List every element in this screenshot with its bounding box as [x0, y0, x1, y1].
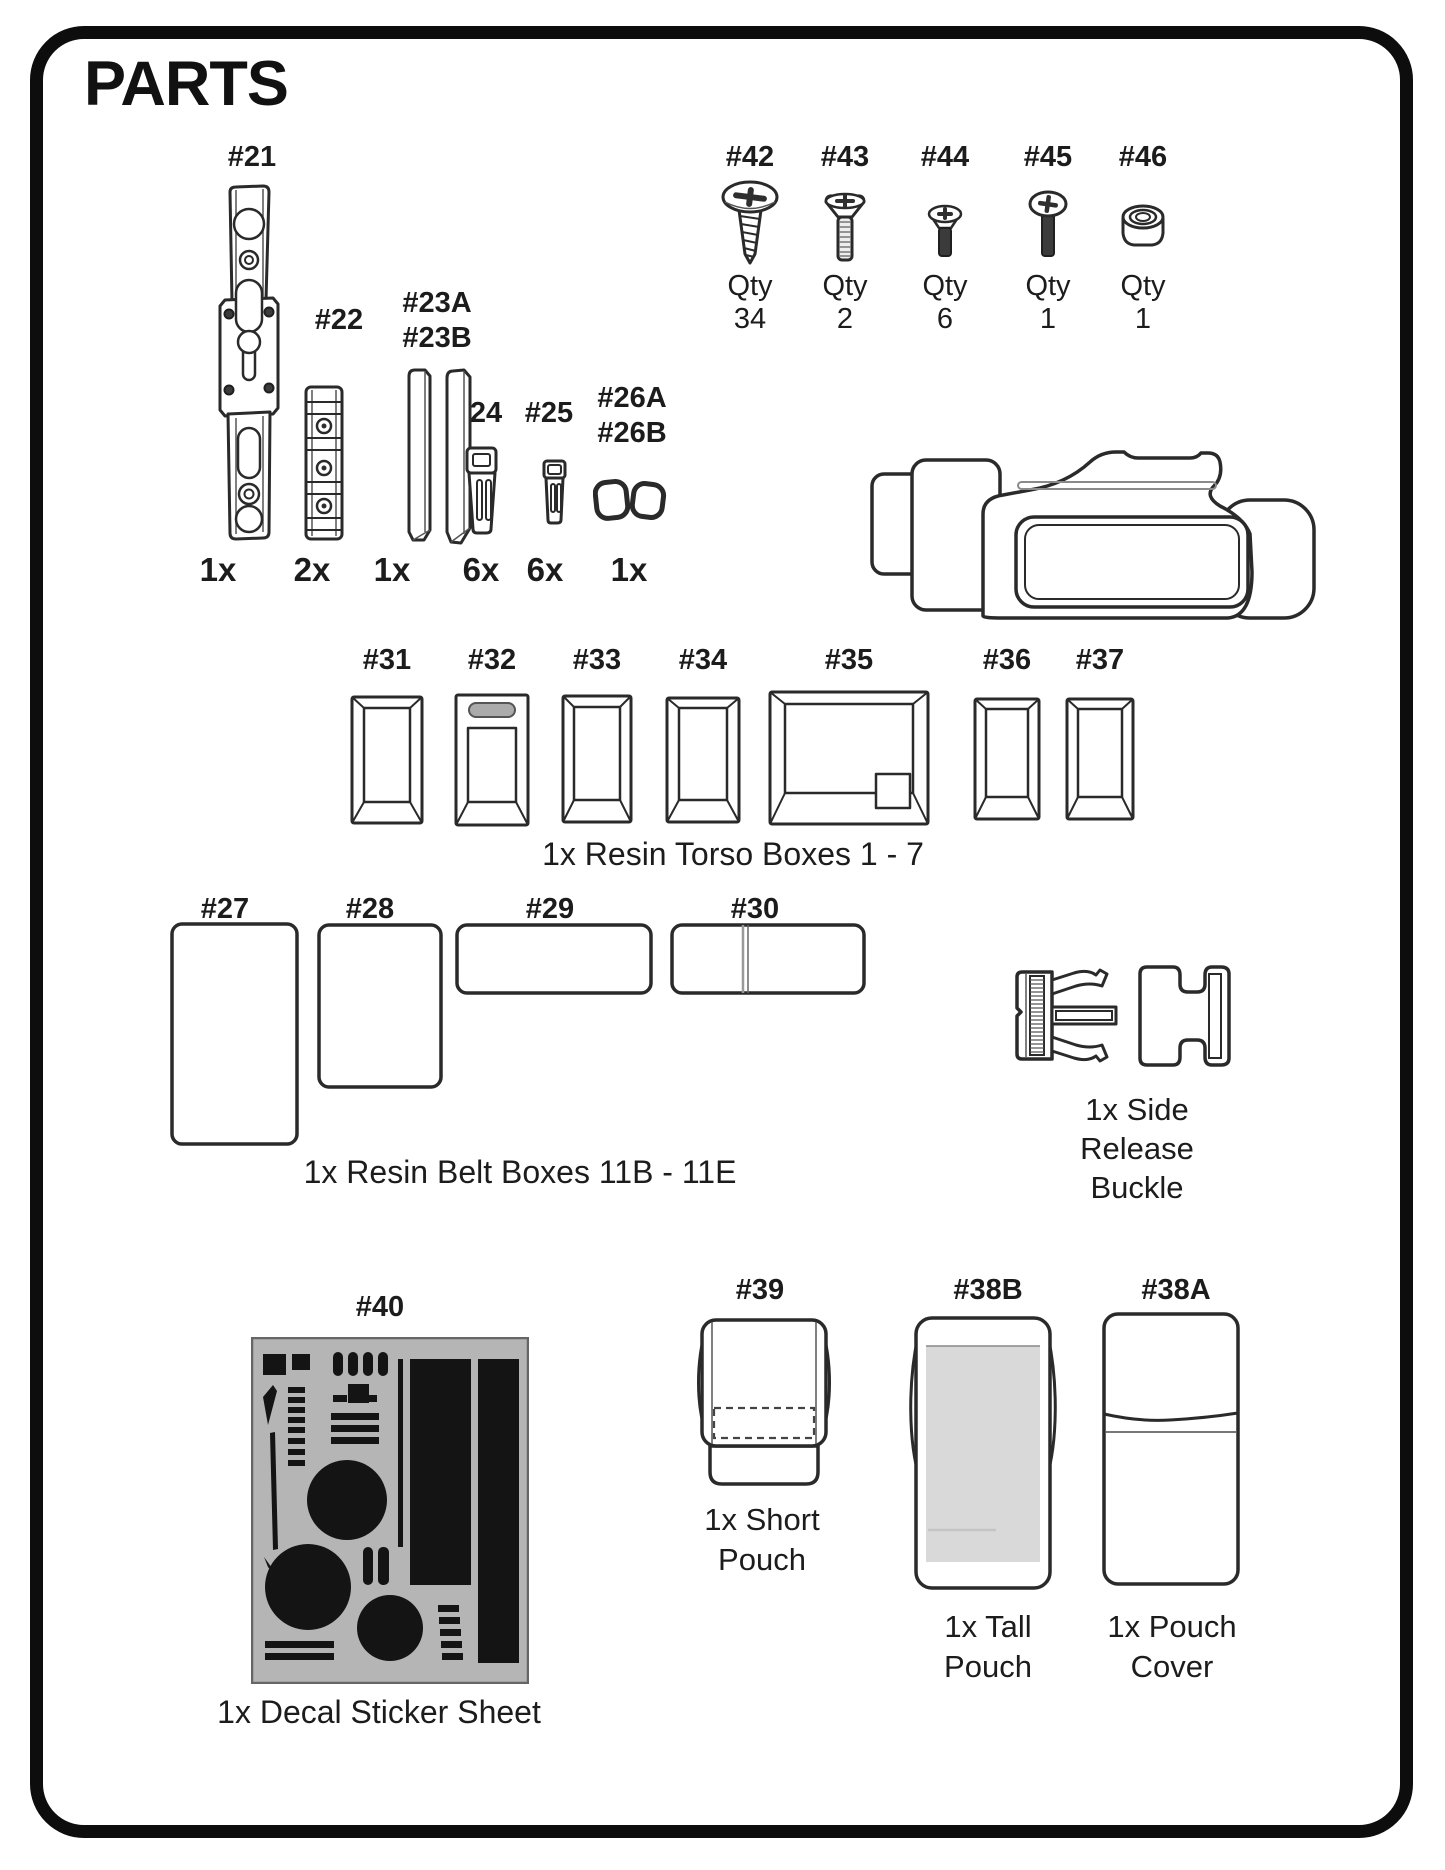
part-24-qty: 6x	[463, 551, 500, 589]
parts-page: PARTS #21 #22 #23A #23B #24 #25 #26A #26…	[0, 0, 1445, 1870]
part-25-illustration	[538, 458, 570, 526]
box-32-illustration	[452, 686, 532, 834]
box-32-label: #32	[468, 643, 516, 678]
box-36-illustration	[972, 692, 1042, 826]
part-26-label: #26A #26B	[597, 381, 666, 451]
tall-pouch-caption: 1x Tall Pouch	[944, 1607, 1032, 1687]
screw-42-icon	[719, 180, 781, 268]
box-31-illustration	[348, 688, 426, 832]
decal-sheet-illustration	[251, 1337, 529, 1684]
chest-box-illustration	[868, 422, 1318, 627]
part-21-label: #21	[228, 140, 276, 175]
box-34-illustration	[663, 690, 743, 830]
screw-43-qty: Qty2	[822, 270, 867, 336]
short-pouch-illustration	[688, 1312, 840, 1494]
part-21-qty: 1x	[200, 551, 237, 589]
nut-46-qty: Qty1	[1120, 270, 1165, 336]
box-36-label: #36	[983, 643, 1031, 678]
part-25-qty: 6x	[527, 551, 564, 589]
decal-sheet-label: #40	[356, 1290, 404, 1325]
nut-46-label: #46	[1119, 140, 1167, 175]
box-30-illustration	[668, 921, 868, 997]
pouch-cover-label: #38A	[1141, 1273, 1210, 1308]
buckle-male-illustration	[1010, 958, 1122, 1073]
screw-42-qty: Qty34	[727, 270, 772, 336]
screw-45-label: #45	[1024, 140, 1072, 175]
tall-pouch-label: #38B	[953, 1273, 1022, 1308]
screw-43-label: #43	[821, 140, 869, 175]
box-33-illustration	[559, 688, 635, 830]
box-27-illustration	[168, 920, 301, 1148]
pouch-cover-illustration	[1100, 1310, 1242, 1590]
part-25-label: #25	[525, 396, 573, 431]
part-22-label: #22	[315, 303, 363, 338]
torso-boxes-caption: 1x Resin Torso Boxes 1 - 7	[542, 836, 924, 873]
tall-pouch-illustration	[906, 1312, 1060, 1596]
part-26-qty: 1x	[611, 551, 648, 589]
part-24-illustration	[460, 444, 502, 536]
box-33-label: #33	[573, 643, 621, 678]
screw-45-icon	[1027, 190, 1069, 260]
short-pouch-caption: 1x Short Pouch	[704, 1500, 819, 1580]
pouch-cover-caption: 1x Pouch Cover	[1107, 1607, 1236, 1687]
screw-45-qty: Qty1	[1025, 270, 1070, 336]
belt-boxes-caption: 1x Resin Belt Boxes 11B - 11E	[304, 1154, 737, 1191]
part-26-illustration	[593, 477, 667, 523]
buckle-female-illustration	[1133, 960, 1235, 1072]
part-21-illustration	[203, 182, 295, 544]
box-35-illustration	[766, 684, 932, 832]
short-pouch-label: #39	[736, 1273, 784, 1308]
box-31-label: #31	[363, 643, 411, 678]
part-23-qty: 1x	[374, 551, 411, 589]
part-22-illustration	[299, 382, 349, 544]
part-23-label: #23A #23B	[402, 286, 471, 356]
box-37-label: #37	[1076, 643, 1124, 678]
screw-44-label: #44	[921, 140, 969, 175]
nut-46-icon	[1120, 203, 1166, 248]
box-35-label: #35	[825, 643, 873, 678]
screw-43-icon	[821, 190, 869, 266]
box-34-label: #34	[679, 643, 727, 678]
box-37-illustration	[1063, 692, 1137, 826]
screw-42-label: #42	[726, 140, 774, 175]
part-22-qty: 2x	[294, 551, 331, 589]
screw-44-icon	[925, 202, 965, 260]
buckle-caption: 1x Side Release Buckle	[1080, 1090, 1194, 1207]
decal-sheet-caption: 1x Decal Sticker Sheet	[217, 1694, 541, 1731]
screw-44-qty: Qty6	[922, 270, 967, 336]
page-title: PARTS	[84, 48, 288, 120]
box-28-illustration	[315, 921, 445, 1091]
box-29-illustration	[453, 921, 655, 997]
